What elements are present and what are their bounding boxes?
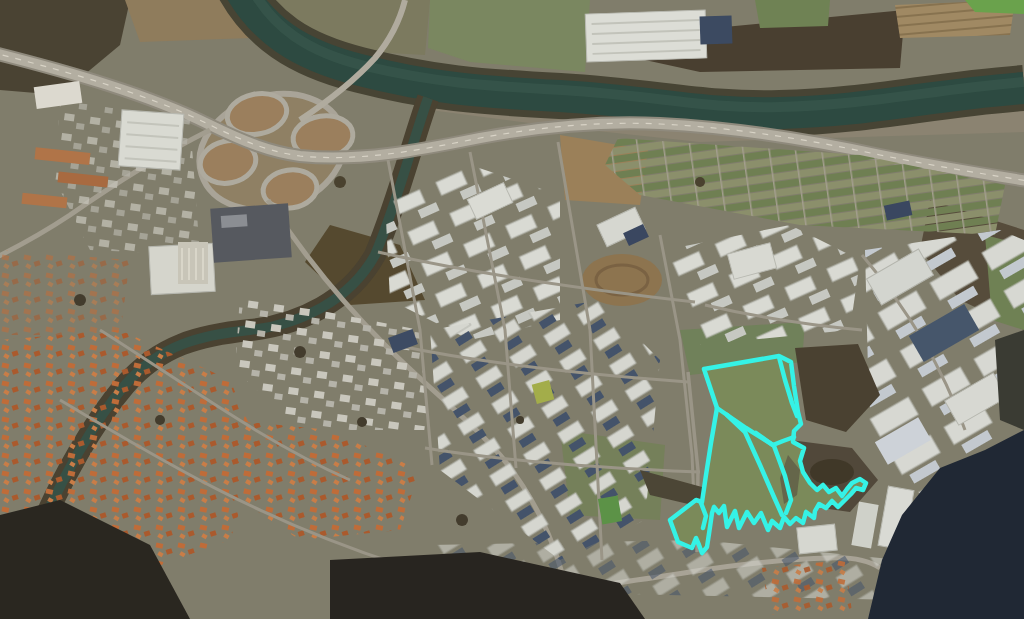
aerial-imagery (0, 0, 1024, 619)
village-bottom-right (762, 560, 852, 615)
tree-blob (695, 177, 705, 187)
tree-blob (334, 176, 346, 188)
town-sparse (0, 250, 130, 335)
mall-roof-unit (221, 214, 248, 228)
knoll-shadow (810, 459, 854, 485)
satellite-map-view[interactable] (0, 0, 1024, 619)
tree-blob (516, 416, 524, 424)
factory-solar-roof (700, 15, 733, 44)
scrap-yard (582, 254, 662, 306)
mall-building (210, 203, 292, 262)
tree-blob (294, 346, 306, 358)
tree-blob (155, 415, 165, 425)
tree-blob (74, 294, 86, 306)
crop-rows-top (755, 0, 830, 28)
tree-blob (456, 514, 468, 526)
hangar-se-c (797, 524, 838, 554)
tree-blob (357, 417, 367, 427)
